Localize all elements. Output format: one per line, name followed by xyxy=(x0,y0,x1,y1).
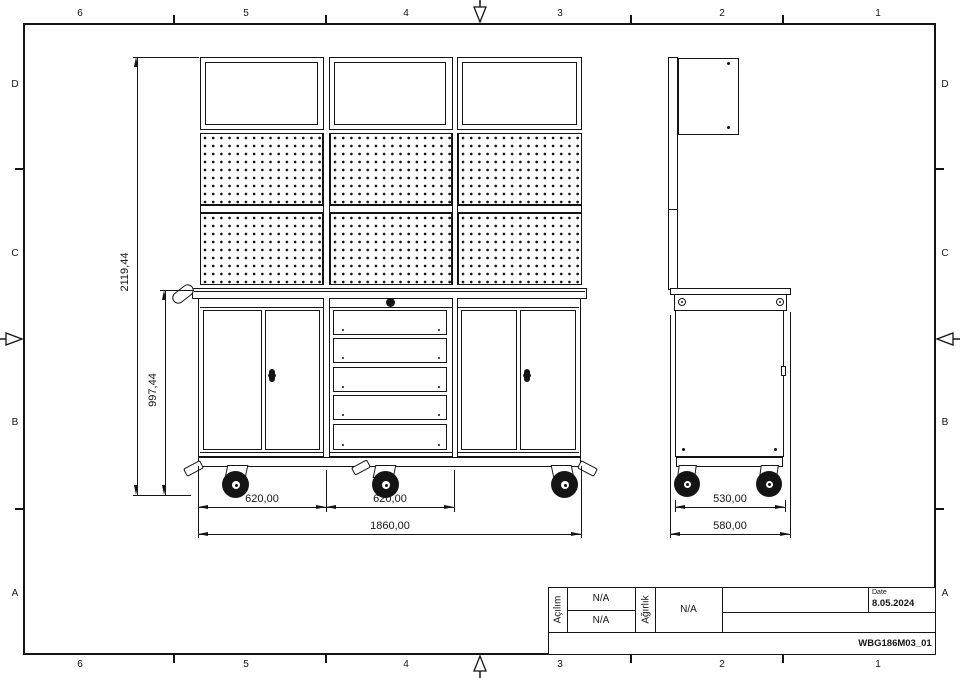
grid-col-label: 3 xyxy=(550,8,570,19)
grid-tick xyxy=(173,654,175,663)
dim-line xyxy=(326,507,454,508)
dim-text: 620,00 xyxy=(202,493,322,505)
dim-arrow-icon xyxy=(670,532,680,536)
caster-pin xyxy=(768,483,771,486)
dim-arrow-icon xyxy=(675,505,685,509)
dim-arrow-icon xyxy=(775,505,785,509)
pegboard-panel xyxy=(458,133,582,205)
drawer-front xyxy=(333,367,447,392)
dim-arrow-icon xyxy=(162,290,166,300)
drawing-sheet: 6 5 4 3 2 1 6 5 4 3 2 1 D C B A D C B A xyxy=(0,0,960,678)
side-post-joint xyxy=(668,209,678,210)
drawer-front xyxy=(333,395,447,420)
title-block-line xyxy=(635,587,636,632)
dim-text: 2119,44 xyxy=(119,237,131,307)
grid-tick xyxy=(782,654,784,663)
bolt-pin xyxy=(779,301,781,303)
dim-text: 1860,00 xyxy=(330,520,450,532)
title-block-line xyxy=(868,587,869,612)
dim-arrow-icon xyxy=(162,485,166,495)
dim-arrow-icon xyxy=(316,505,326,509)
dim-line xyxy=(198,507,326,508)
drawer-screw xyxy=(342,329,344,331)
drawer-screw xyxy=(438,444,440,446)
grid-tick xyxy=(325,654,327,663)
center-marker-bottom-icon xyxy=(471,654,489,678)
dim-line xyxy=(165,290,166,495)
title-block-line xyxy=(567,610,635,611)
grid-col-label: 4 xyxy=(396,659,416,670)
dim-extension xyxy=(581,466,582,538)
pegboard-divider xyxy=(200,205,582,213)
side-cabinet-body xyxy=(675,310,784,457)
drawer-screw xyxy=(438,386,440,388)
grid-row-label: C xyxy=(938,248,952,259)
dim-line xyxy=(137,57,138,495)
grid-col-label: 5 xyxy=(236,659,256,670)
grid-col-label: 1 xyxy=(868,659,888,670)
drawer-screw xyxy=(438,329,440,331)
grid-row-label: B xyxy=(938,417,952,428)
grid-col-label: 2 xyxy=(712,8,732,19)
dim-text: 530,00 xyxy=(675,493,785,505)
drawer-screw xyxy=(342,386,344,388)
grid-tick xyxy=(630,654,632,663)
grid-tick xyxy=(935,508,944,510)
dim-line xyxy=(198,534,581,535)
dim-line xyxy=(670,534,790,535)
caster-pin xyxy=(235,484,238,487)
grid-col-label: 4 xyxy=(396,8,416,19)
dim-line xyxy=(675,507,785,508)
drawer-screw xyxy=(342,444,344,446)
pegboard-panel xyxy=(458,213,582,285)
worktop-edge-line xyxy=(194,291,585,292)
screw-dot xyxy=(727,126,730,129)
drawer-screw xyxy=(342,414,344,416)
dim-extension xyxy=(670,315,671,538)
cabinet-door xyxy=(461,310,517,450)
grid-tick xyxy=(15,508,24,510)
grid-row-label: C xyxy=(8,248,22,259)
shelf-post xyxy=(452,57,458,130)
grid-tick xyxy=(782,15,784,24)
drawer-screw xyxy=(438,357,440,359)
dim-text: 997,44 xyxy=(147,360,159,420)
dim-arrow-icon xyxy=(134,485,138,495)
agirlik-label: Ağırlık xyxy=(641,589,652,631)
grid-tick xyxy=(935,168,944,170)
cabinet-post xyxy=(323,298,330,457)
acilim-value-top: N/A xyxy=(567,593,635,604)
screw-dot xyxy=(774,448,777,451)
pegboard-post xyxy=(323,133,330,285)
grid-col-label: 5 xyxy=(236,8,256,19)
pegboard-panel xyxy=(330,213,452,285)
side-latch xyxy=(781,366,786,376)
pegboard-post xyxy=(452,133,458,285)
grid-tick xyxy=(630,15,632,24)
screw-dot xyxy=(682,448,685,451)
dim-extension xyxy=(198,466,199,538)
date-value: 8.05.2024 xyxy=(872,598,934,610)
caster-pin xyxy=(564,484,567,487)
grid-col-label: 6 xyxy=(70,659,90,670)
grid-col-label: 1 xyxy=(868,8,888,19)
grid-row-label: A xyxy=(8,588,22,599)
title-block-line xyxy=(722,612,936,613)
shelf-post xyxy=(323,57,330,130)
dim-arrow-icon xyxy=(571,532,581,536)
cabinet-top-rail xyxy=(200,307,579,308)
cabinet-bottom-rail xyxy=(200,452,579,453)
side-worktop-apron xyxy=(674,294,787,311)
center-marker-right-icon xyxy=(934,330,960,348)
caster-pin xyxy=(686,483,689,486)
center-marker-left-icon xyxy=(0,330,24,348)
grid-col-label: 2 xyxy=(712,659,732,670)
dim-arrow-icon xyxy=(326,505,336,509)
grid-col-label: 3 xyxy=(550,659,570,670)
cabinet-post xyxy=(452,298,458,457)
grid-col-label: 6 xyxy=(70,8,90,19)
bolt-pin xyxy=(681,301,683,303)
dim-extension xyxy=(790,312,791,538)
dim-arrow-icon xyxy=(134,57,138,67)
screw-dot xyxy=(727,62,730,65)
drawer-screw xyxy=(438,414,440,416)
dim-arrow-icon xyxy=(444,505,454,509)
pegboard-panel xyxy=(200,133,323,205)
center-marker-top-icon xyxy=(471,0,489,24)
title-block-line xyxy=(722,587,723,632)
title-block-line xyxy=(548,632,936,633)
date-label: Date xyxy=(872,589,912,597)
drawer-front xyxy=(333,424,447,450)
grid-row-label: D xyxy=(8,79,22,90)
drawer-screw xyxy=(342,357,344,359)
pegboard-panel xyxy=(200,213,323,285)
dim-arrow-icon xyxy=(198,532,208,536)
agirlik-value: N/A xyxy=(655,604,722,615)
grid-tick xyxy=(173,15,175,24)
door-lock-wing xyxy=(268,373,276,378)
grid-tick xyxy=(325,15,327,24)
shelf-opening xyxy=(462,62,577,125)
dim-text: 620,00 xyxy=(330,493,450,505)
acilim-value-bottom: N/A xyxy=(567,615,635,626)
grid-tick xyxy=(15,168,24,170)
drawer-unit-knob xyxy=(386,298,395,307)
acilim-label: Açılım xyxy=(553,590,564,630)
shelf-opening xyxy=(334,62,446,125)
grid-row-label: D xyxy=(938,79,952,90)
drawer-front xyxy=(333,338,447,363)
side-post xyxy=(668,57,678,290)
dim-arrow-icon xyxy=(780,532,790,536)
cabinet-door xyxy=(203,310,262,450)
dim-text: 580,00 xyxy=(670,520,790,532)
side-upper-cabinet xyxy=(678,58,739,135)
dim-arrow-icon xyxy=(198,505,208,509)
drawing-code: WBG186M03_01 xyxy=(845,638,945,650)
dim-extension xyxy=(133,57,199,58)
door-lock-wing xyxy=(523,373,531,378)
grid-row-label: A xyxy=(938,588,952,599)
drawer-front xyxy=(333,310,447,335)
caster-pin xyxy=(385,484,388,487)
pegboard-panel xyxy=(330,133,452,205)
grid-row-label: B xyxy=(8,417,22,428)
shelf-opening xyxy=(205,62,318,125)
